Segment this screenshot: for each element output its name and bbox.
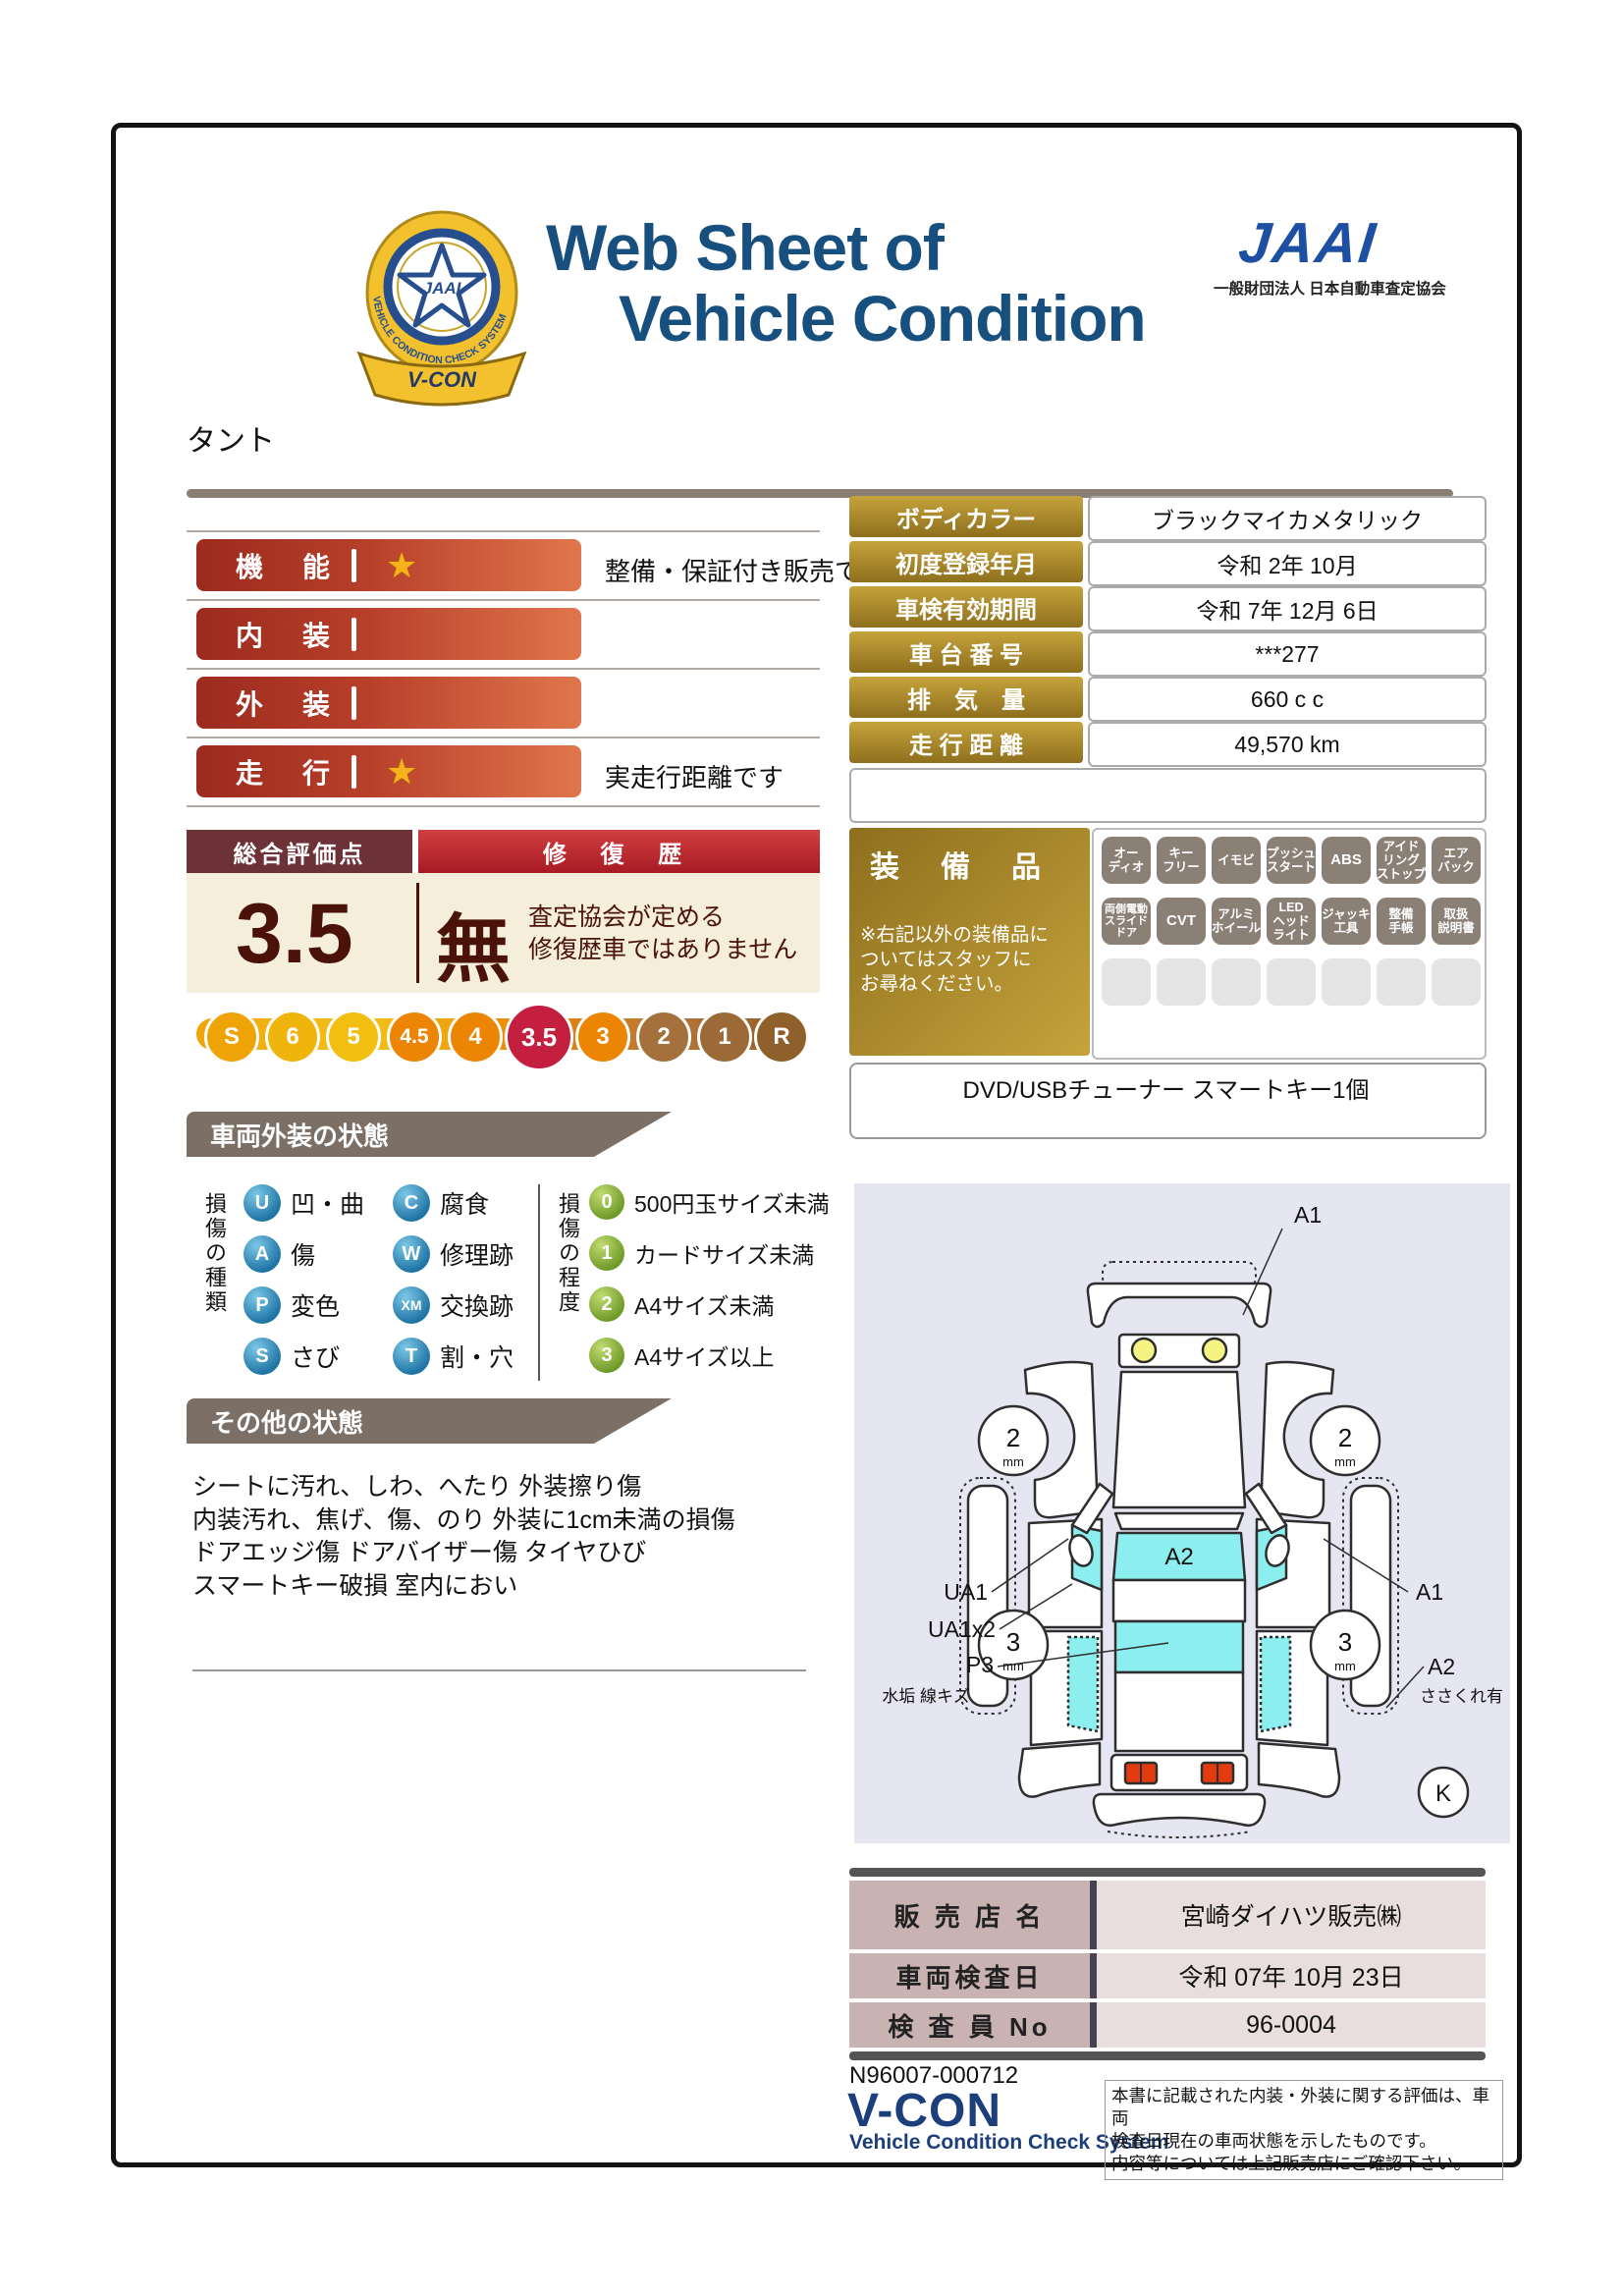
info-label: 車 台 番 号 [849,631,1083,673]
equip-jacktools: ジャッキ 工具 [1322,898,1371,945]
equip-empty-slot [1432,958,1481,1006]
equip-empty-slot [1102,958,1151,1006]
equip-empty-slot [1212,958,1261,1006]
damage-label-front: A1 [1294,1202,1322,1228]
info-value: 49,570 km [1088,722,1487,767]
rating-bar-exterior: 外 装 [196,677,581,729]
damage-label-left-rear-door: UA1x2 [928,1616,996,1642]
type-code: XM [393,1286,430,1324]
rating-pipe [352,686,356,720]
repair-history-note: 査定協会が定める 修復歴車ではありません [528,902,797,965]
rear-door-window [1068,1637,1098,1731]
scale-item-1: 1 [697,1010,752,1065]
type-code: C [393,1184,430,1222]
tire-depth-rear-right: 3 [1338,1627,1352,1657]
equip-pushstart: プッシュ スタート [1267,837,1316,884]
front-bumper [1088,1284,1271,1327]
tailgate [1115,1672,1243,1751]
equip-idlingstop: アイド リング ストップ [1377,837,1426,884]
equip-empty-slot [1157,958,1206,1006]
tire-unit: mm [1334,1659,1356,1673]
other-section-header: その他の状態 [187,1398,672,1444]
legend-type-u: U 凹・曲 [243,1184,364,1222]
equip-airbag: エア バック [1432,837,1481,884]
scale-item-6: 6 [265,1010,320,1065]
exterior-section-header: 車両外装の状態 [187,1112,672,1157]
dealer-divider [1090,2002,1097,2048]
svg-text:V-CON: V-CON [407,367,477,392]
overall-score-value: 3.5 [236,886,353,983]
damage-degree-legend-title: 損傷の程度 [552,1192,583,1359]
info-label: ボディカラー [849,496,1083,537]
type-code: S [243,1338,281,1375]
info-value: 令和 2年 10月 [1088,541,1487,586]
rule [187,737,820,738]
rear-window [1115,1621,1243,1672]
rule [187,530,820,532]
rating-note: 整備・保証付き販売です [605,552,886,588]
equip-empty-slot [1267,958,1316,1006]
hood [1113,1372,1245,1507]
inspection-date-value: 令和 07年 10月 23日 [1097,1953,1486,1998]
equip-abs: ABS [1322,837,1371,884]
scale-item-5: 5 [326,1010,381,1065]
type-label: さび [291,1339,340,1374]
rating-label: 機 能 [196,546,336,585]
type-label: 凹・曲 [291,1185,364,1221]
equip-empty-slot [1322,958,1371,1006]
dealer-value: 宮崎ダイハツ販売㈱ [1097,1881,1486,1949]
info-label: 初度登録年月 [849,541,1083,582]
other-bottom-rule [192,1669,806,1671]
legend-type-w: W 修理跡 [393,1235,514,1273]
type-label: 変色 [291,1287,340,1323]
type-label: 修理跡 [440,1236,514,1272]
type-label: 交換跡 [440,1287,514,1323]
damage-label-right-sill-sub: ささくれ有 [1420,1687,1503,1706]
legend-type-t: T 割・穴 [393,1338,514,1375]
rating-bar-interior: 内 装 [196,608,581,660]
equip-cvt: CVT [1157,898,1206,945]
damage-label-roof: P3 [966,1652,994,1677]
footer-disclaimer: 本書に記載された内装・外装に関する評価は、車両 検査日現在の車両状態を示したもの… [1105,2080,1503,2180]
corner-mark: K [1435,1780,1451,1807]
scale-item-3: 3 [575,1010,630,1065]
equip-slidedoor: 両側電動 スライド ドア [1102,898,1151,945]
type-code: T [393,1338,430,1375]
page-title-line1: Web Sheet of [546,214,944,282]
rating-bar-mileage: 走 行 ★ [196,745,581,797]
leader-a2-right [1386,1667,1424,1708]
cowl [1115,1513,1243,1529]
info-value: 令和 7年 12月 6日 [1088,586,1487,631]
degree-code: 0 [589,1184,624,1220]
vcon-wordmark: V-CON [847,2084,1001,2138]
overall-score-header: 総合評価点 [187,830,412,873]
star-icon: ★ [386,751,417,793]
damage-type-legend-title: 損傷の種類 [198,1192,230,1359]
scale-item-4: 4 [448,1010,503,1065]
rating-pipe [352,618,356,651]
rear-fender [1019,1743,1100,1797]
degree-label: 500円玉サイズ未満 [634,1185,830,1219]
equip-manual: 取扱 説明書 [1432,898,1481,945]
vehicle-condition-sheet: JAAI VEHICLE CONDITION CHECK SYSTEM V-CO… [0,0,1623,2296]
star-icon: ★ [386,545,417,586]
legend-degree-1: 1 カードサイズ未満 [589,1235,814,1271]
other-condition-text: シートに汚れ、しわ、へたり 外装擦り傷 内装汚れ、焦げ、傷、のり 外装に1cm未… [192,1471,821,1603]
damage-label-windshield: A2 [1164,1544,1193,1570]
tire-unit: mm [1002,1454,1024,1469]
degree-code: 3 [589,1338,624,1373]
equipment-title: 装 備 品 [870,843,1047,886]
degree-label: A4サイズ未満 [634,1287,774,1321]
type-label: 傷 [291,1236,315,1272]
type-code: A [243,1235,281,1273]
rating-label: 外 装 [196,683,336,723]
info-value: ブラックマイカメタリック [1088,496,1487,541]
rule [187,668,820,670]
damage-label-right-door: A1 [1416,1579,1443,1605]
roof [1113,1580,1245,1621]
equipment-extra-note: DVD/USBチューナー スマートキー1個 [849,1070,1483,1105]
dealer-label: 販 売 店 名 [849,1881,1090,1949]
equip-keyfree: キー フリー [1157,837,1206,884]
car-damage-diagram: A1 A2 UA1 UA1x2 P3 水垢 線キズ A1 A2 ささくれ有 2 … [854,1183,1510,1843]
jaai-logo: JAAI [1235,210,1380,276]
jaai-subtitle: 一般財団法人 日本自動車査定協会 [1214,277,1446,299]
info-label: 走 行 距 離 [849,722,1083,763]
tire-depth-rear-left: 3 [1006,1627,1020,1657]
rating-label: 走 行 [196,752,336,792]
rear-bumper-outline [1108,1831,1251,1837]
legend-type-p: P 変色 [243,1286,340,1324]
rear-bumper [1094,1794,1265,1826]
dealer-table-bottom-bar [849,2051,1486,2060]
type-label: 割・穴 [440,1339,514,1374]
inspector-no-label: 検 査 員 No [849,2002,1090,2048]
rating-pipe [352,549,356,582]
dealer-divider [1090,1881,1097,1949]
degree-code: 2 [589,1286,624,1322]
type-code: W [393,1235,430,1273]
equip-empty-slot [1377,958,1426,1006]
headlight-left [1132,1339,1156,1362]
damage-label-roof-sub: 水垢 線キズ [882,1687,970,1706]
inspection-date-label: 車両検査日 [849,1953,1090,1998]
scale-item-3-5-selected: 3.5 [505,1003,573,1071]
page-title-line2: Vehicle Condition [619,285,1146,353]
legend-type-s: S さび [243,1338,340,1375]
legend-degree-2: 2 A4サイズ未満 [589,1286,774,1322]
repair-history-value: 無 [436,889,511,997]
type-code: P [243,1286,281,1324]
rule [187,599,820,601]
legend-type-a: A 傷 [243,1235,315,1273]
overall-vertical-rule [416,883,419,983]
equip-ledheadlight: LED ヘッド ライト [1267,898,1316,945]
tire-unit: mm [1334,1454,1356,1469]
damage-label-right-sill: A2 [1428,1654,1455,1679]
degree-code: 1 [589,1235,624,1271]
scale-item-2: 2 [636,1010,691,1065]
rating-bar-function: 機 能 ★ [196,539,581,591]
equip-servicebook: 整備 手帳 [1377,898,1426,945]
legend-degree-0: 0 500円玉サイズ未満 [589,1184,830,1220]
dealer-table-top-bar [849,1868,1486,1877]
scale-item-4-5: 4.5 [387,1010,442,1065]
rating-pipe [352,755,356,789]
equip-audio: オー ディオ [1102,837,1151,884]
type-code: U [243,1184,281,1222]
vehicle-name: タント [187,416,275,460]
legend-type-xm: XM 交換跡 [393,1286,514,1324]
headlight-right [1203,1339,1226,1362]
damage-label-left-door: UA1 [944,1579,988,1605]
tire-depth-front-right: 2 [1338,1423,1352,1452]
dealer-divider [1090,1953,1097,1998]
legend-type-c: C 腐食 [393,1184,489,1222]
scale-item-s: S [204,1010,259,1065]
rule [187,805,820,807]
vcon-badge-logo: JAAI VEHICLE CONDITION CHECK SYSTEM V-CO… [352,206,533,414]
degree-label: A4サイズ以上 [634,1339,774,1372]
equip-immobilizer: イモビ [1212,837,1261,884]
tire-unit: mm [1002,1659,1024,1673]
equip-alloywheel: アルミ ホイール [1212,898,1261,945]
rating-note: 実走行距離です [605,758,784,794]
scale-item-r: R [754,1010,809,1065]
equipment-note: ※右記以外の装備品に ついてはスタッフに お尋ねください。 [860,923,1049,997]
info-value: ***277 [1088,631,1487,677]
svg-text:JAAI: JAAI [423,279,462,298]
legend-degree-3: 3 A4サイズ以上 [589,1338,774,1373]
degree-label: カードサイズ未満 [634,1236,814,1270]
info-empty-row [849,768,1487,823]
info-label: 車検有効期間 [849,586,1083,628]
rating-label: 内 装 [196,615,336,654]
type-label: 腐食 [440,1185,489,1221]
info-label: 排 気 量 [849,677,1083,718]
info-value: 660 c c [1088,677,1487,722]
tire-depth-front-left: 2 [1006,1423,1020,1452]
repair-history-header: 修 復 歴 [418,830,820,873]
legend-divider [538,1184,540,1381]
inspector-no-value: 96-0004 [1097,2002,1486,2048]
